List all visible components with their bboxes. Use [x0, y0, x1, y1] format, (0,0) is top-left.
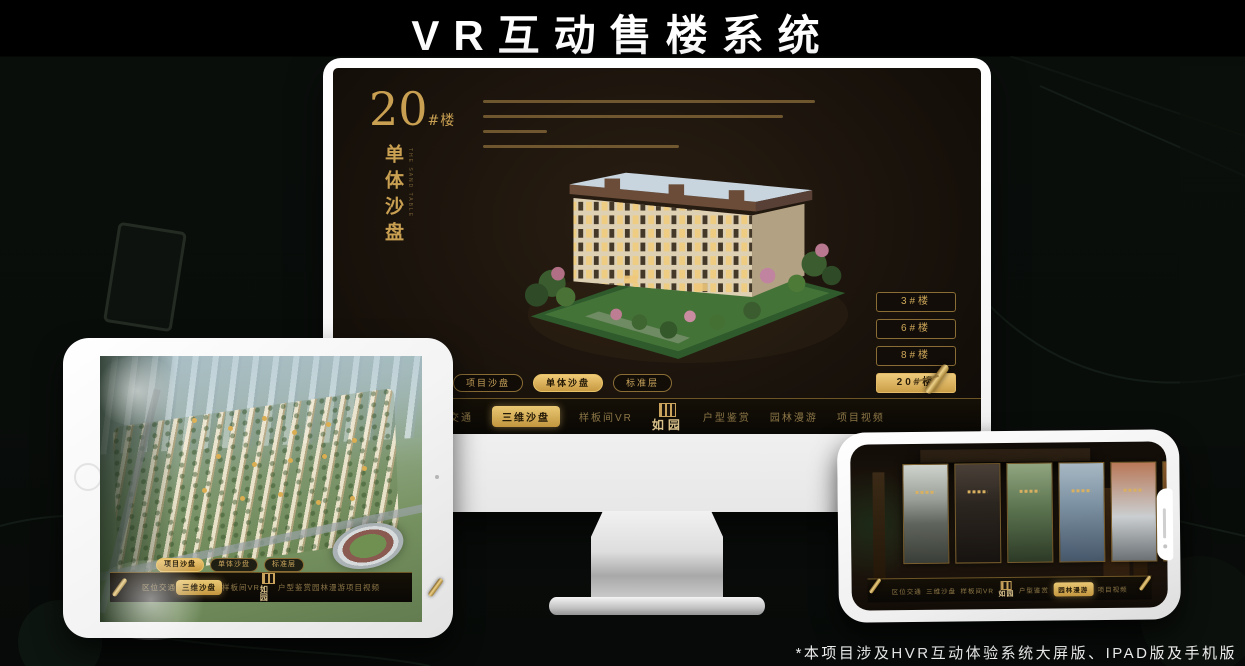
- monitor-sub-tabs: 项目沙盘 单体沙盘 标准层: [453, 374, 672, 392]
- scroll-icon[interactable]: [867, 576, 882, 596]
- tab-project-sandtable[interactable]: 项目沙盘: [453, 374, 523, 392]
- nav-item-showroom-vr[interactable]: 样板间VR: [222, 582, 260, 593]
- scroll-rod: [1139, 575, 1152, 591]
- ruyuan-logo[interactable]: 如园: [260, 573, 278, 602]
- scroll-icon[interactable]: [921, 360, 951, 400]
- logo-text: 如园: [652, 419, 684, 431]
- seal-icon: [1001, 581, 1012, 590]
- floor-button-6[interactable]: 6#楼: [876, 319, 956, 339]
- heading-caption-en: THE SAND TABLE: [407, 148, 413, 258]
- tab-single-sandtable[interactable]: 单体沙盘: [533, 374, 603, 392]
- gallery-panel-interior[interactable]: [954, 463, 1001, 563]
- phone-screen: 区位交通 三维沙盘 样板间VR 如园 户型鉴赏 园林漫游 项目视频: [850, 441, 1168, 610]
- description-lines: [483, 100, 823, 160]
- seal-icon: [262, 573, 275, 584]
- gallery-panel-autumn[interactable]: [1110, 461, 1157, 561]
- gallery-panels: [902, 461, 1168, 564]
- panel-caption: [1072, 489, 1092, 492]
- tab-standard-floor[interactable]: 标准层: [264, 558, 304, 572]
- logo-text: 如园: [998, 591, 1014, 598]
- nav-item-garden-roam[interactable]: 园林漫游: [1053, 582, 1093, 596]
- seal-icon: [659, 403, 676, 417]
- gate-beam: [920, 448, 1090, 463]
- monitor-stand-base: [549, 597, 765, 615]
- nav-item-project-video[interactable]: 项目视频: [346, 582, 380, 593]
- nav-item-showroom-vr[interactable]: 样板间VR: [579, 409, 633, 424]
- nav-item-floorplan[interactable]: 户型鉴赏: [278, 582, 312, 593]
- panel-caption: [968, 490, 988, 493]
- ruyuan-logo[interactable]: 如园: [652, 403, 684, 431]
- scroll-rod: [427, 577, 443, 597]
- nav-item-3d-sandtable[interactable]: 三维沙盘: [926, 585, 956, 595]
- home-button[interactable]: [74, 463, 102, 491]
- mist-overlay: [92, 356, 182, 426]
- building-heading: 20#楼: [369, 86, 455, 132]
- panel-caption: [916, 491, 936, 494]
- floor-button-3[interactable]: 3#楼: [876, 292, 956, 312]
- heading-vertical: 单体沙盘: [379, 144, 406, 274]
- nav-item-floorplan[interactable]: 户型鉴赏: [703, 409, 751, 424]
- gallery-panel-tower[interactable]: [1058, 462, 1105, 562]
- nav-item-location[interactable]: 区位交通: [892, 585, 922, 595]
- monitor-stand-neck: [591, 511, 723, 601]
- nav-item-garden-roam[interactable]: 园林漫游: [770, 409, 818, 424]
- gate-pillar: [872, 472, 885, 592]
- panel-caption: [1020, 490, 1040, 493]
- screenshot-root: VR互动售楼系统 *本项目涉及HVR互动体验系统大屏版、IPAD版及手机版 20…: [0, 0, 1245, 666]
- ruyuan-logo[interactable]: 如园: [998, 581, 1014, 598]
- camera-icon: [1163, 544, 1167, 548]
- nav-item-3d-sandtable[interactable]: 三维沙盘: [492, 406, 560, 427]
- gallery-panel-courtyard[interactable]: [902, 464, 949, 564]
- page-title: VR互动售楼系统: [0, 2, 1245, 63]
- logo-text: 如园: [260, 586, 278, 602]
- nav-item-floorplan[interactable]: 户型鉴赏: [1019, 584, 1049, 594]
- nav-item-showroom-vr[interactable]: 样板间VR: [960, 585, 994, 595]
- phone-bottom-nav: 区位交通 三维沙盘 样板间VR 如园 户型鉴赏 园林漫游 项目视频: [868, 576, 1152, 603]
- phone-notch: [1157, 488, 1174, 560]
- nav-item-garden-roam[interactable]: 园林漫游: [312, 582, 346, 593]
- tab-standard-floor[interactable]: 标准层: [613, 374, 672, 392]
- building-3d-model[interactable]: [523, 156, 853, 368]
- scroll-rod: [869, 578, 882, 594]
- mist-overlay: [86, 560, 216, 640]
- tab-single-sandtable[interactable]: 单体沙盘: [210, 558, 258, 572]
- tablet-camera-icon: [435, 475, 439, 479]
- phone-frame: 区位交通 三维沙盘 样板间VR 如园 户型鉴赏 园林漫游 项目视频: [837, 429, 1181, 623]
- scroll-icon[interactable]: [426, 576, 445, 601]
- speaker-icon: [1163, 508, 1166, 538]
- scroll-icon[interactable]: [1137, 574, 1152, 594]
- panel-caption: [1124, 489, 1144, 492]
- gallery-panel-garden[interactable]: [1006, 463, 1053, 563]
- nav-item-project-video[interactable]: 项目视频: [1098, 583, 1128, 593]
